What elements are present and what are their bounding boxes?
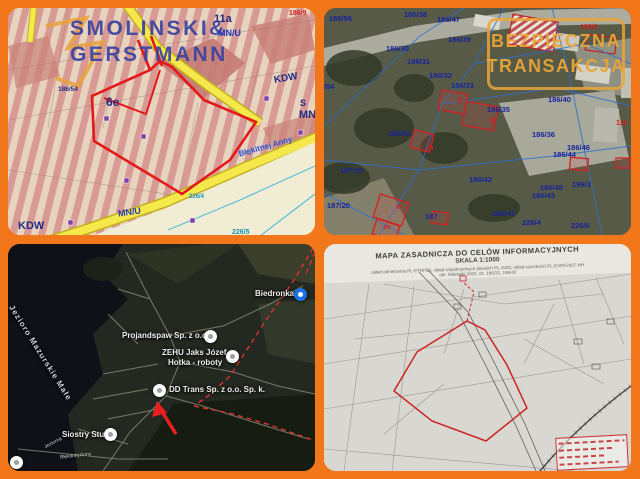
- red-building-label: m: [427, 145, 433, 152]
- parcel-number: 199/3: [572, 181, 591, 189]
- plan-label-6e: 6e: [106, 96, 119, 108]
- plan-label-186-54: 186/54: [58, 87, 78, 94]
- watermark-line2: GERSTMANN: [70, 44, 228, 65]
- plan-label-kdw-bottom: KDW: [18, 221, 44, 232]
- parcel-number: 186/34: [388, 130, 411, 138]
- red-building-label: m: [396, 204, 402, 211]
- listing-map-collage: SMOLINSKI& GERSTMANN 11a MN/U 186/9 KDW …: [0, 0, 640, 479]
- plan-label-186-9: 186/9: [289, 10, 307, 17]
- satellite-location-map: Jezioro Mazurskie Małe Biedronka Projand…: [8, 244, 315, 471]
- poi-zehu-label-line1: ZEHU Jaks Józef: [162, 349, 226, 357]
- parcel-number: 186/43: [532, 192, 555, 200]
- poi-projandspaw-label: Projandspaw Sp. z o.o.: [122, 332, 209, 340]
- parcel-number: 186/41: [492, 210, 515, 218]
- parcel-number: 186/32: [429, 72, 452, 80]
- parcel-number: 186/44: [553, 151, 576, 159]
- watermark-badge: BEZPIECZNA TRANSAKCJA: [487, 18, 625, 90]
- poi-ddtrans-label: DD Trans Sp. z o.o. Sp. k.: [169, 386, 265, 394]
- parcel-number: 186/39: [448, 36, 471, 44]
- poi-biedronka-label: Biedronka: [255, 290, 294, 298]
- scanned-base-map: MAPA ZASADNICZA DO CELÓW INFORMACYJNYCH …: [324, 244, 631, 471]
- ddtrans-pin-icon[interactable]: [153, 384, 166, 397]
- siostry-pin-icon[interactable]: [104, 428, 117, 441]
- scan-legend-table: [555, 434, 629, 471]
- satellite-graphic: [8, 244, 315, 471]
- watermark-line1: BEZPIECZNA: [491, 31, 621, 52]
- red-building-label: g: [458, 97, 462, 104]
- parcel-number: 226/4: [522, 219, 541, 227]
- corner-pin-icon[interactable]: [10, 456, 23, 469]
- plan-label-s: S: [300, 99, 306, 108]
- parcel-number: 187: [425, 213, 438, 221]
- watermark-line2: TRANSAKCJA: [487, 56, 626, 77]
- plan-label-mn: MN: [299, 110, 315, 121]
- parcel-number: 186/40: [548, 96, 571, 104]
- plan-label-226-4: 226/4: [189, 194, 204, 200]
- plan-label-mnu-top: MN/U: [218, 29, 241, 38]
- parcel-number: 187/19: [340, 167, 363, 175]
- plan-label-11a: 11a: [214, 14, 232, 25]
- parcel-number: 186/30: [386, 45, 409, 53]
- parcel-number: 186/56: [329, 15, 352, 23]
- aerial-cadastral-map: 186/56 186/38 186/47 186/39 186/30 186/3…: [324, 8, 631, 235]
- parcel-number: 187/20: [327, 202, 350, 210]
- zoning-plan-map: SMOLINSKI& GERSTMANN 11a MN/U 186/9 KDW …: [8, 8, 315, 235]
- parcel-number: 186/42: [469, 176, 492, 184]
- watermark-line1: SMOLINSKI&: [70, 18, 227, 39]
- parcel-number: 186/31: [407, 58, 430, 66]
- red-parcel-label: 112: [616, 120, 627, 127]
- parcel-number: 186/47: [437, 16, 460, 24]
- red-building-label: g: [490, 117, 494, 124]
- parcel-number: 186/38: [404, 11, 427, 19]
- parcel-number: 186/36: [532, 131, 555, 139]
- parcel-number: 186/35: [487, 106, 510, 114]
- zehu-pin-icon[interactable]: [226, 350, 239, 363]
- biedronka-pin-icon[interactable]: [294, 288, 307, 301]
- parcel-number: 186/33: [451, 82, 474, 90]
- parcel-number: 226/6: [571, 222, 590, 230]
- projandspaw-pin-icon[interactable]: [204, 330, 217, 343]
- parcel-number: /54: [324, 83, 334, 91]
- plan-label-226-5: 226/5: [232, 229, 250, 235]
- poi-zehu-label-line2: Hotka - roboty: [168, 359, 222, 367]
- red-building-label: m: [384, 224, 390, 231]
